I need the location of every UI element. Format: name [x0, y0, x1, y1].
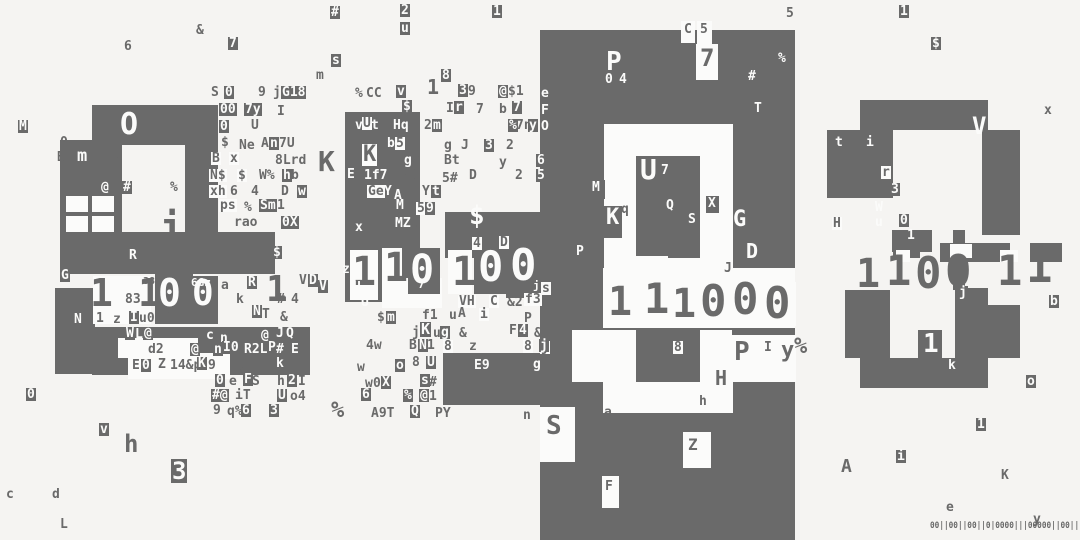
glyph: v [396, 85, 406, 98]
glyph: j [958, 286, 968, 299]
glyph: U [361, 296, 369, 309]
glyph: m [386, 311, 396, 324]
glyph: PY [435, 407, 451, 420]
glyph: B [211, 152, 221, 165]
glyph: iT [235, 389, 251, 402]
glyph: d2 [148, 343, 164, 356]
glyph: 1 [90, 274, 113, 312]
glyph: 1 [384, 248, 408, 288]
glyph: d [52, 488, 60, 501]
glyph: u [875, 216, 883, 229]
glyph: &2 [507, 296, 523, 309]
glyph: 2 [400, 4, 410, 17]
glyph: N [252, 305, 262, 318]
glyph: 8 [443, 340, 453, 353]
glyph: H [832, 217, 842, 230]
glyph: j [533, 280, 540, 291]
glyph: t [835, 136, 843, 149]
glyph: 1 [976, 418, 986, 431]
glyph: xh [209, 185, 227, 198]
glyph: K [197, 357, 207, 370]
glyph: u [400, 22, 410, 35]
glyph: A [261, 137, 269, 150]
glyph: & [196, 24, 204, 37]
glyph: K [318, 148, 335, 176]
glyph: U [277, 389, 287, 402]
glyph: i [479, 308, 489, 321]
block [55, 288, 95, 374]
glyph: I0 [222, 341, 240, 354]
glyph: y [781, 340, 794, 362]
glyph: a [604, 406, 612, 419]
glyph: 1 [997, 250, 1022, 292]
glyph: 6 [230, 185, 238, 198]
glyph: K [420, 322, 431, 337]
glyph: h [277, 375, 285, 388]
block [66, 196, 88, 212]
glyph: 5 [395, 137, 405, 150]
glyph: J [461, 139, 469, 152]
glitch-canvas: 00||00||00||0|0000|||00000||00|| M&67#sm… [0, 0, 1080, 540]
glyph: L [60, 518, 68, 531]
glyph: Bt [444, 154, 460, 167]
glyph: 4 [125, 342, 133, 355]
glyph: 0X [281, 216, 299, 229]
glyph: P [576, 245, 584, 258]
glyph: 2 [424, 119, 432, 132]
glyph: A [841, 458, 852, 476]
glyph: 00 [219, 103, 237, 116]
block [982, 130, 1020, 235]
glyph: M [396, 199, 404, 212]
glyph: A9T [371, 407, 394, 420]
glyph: Z [412, 154, 420, 167]
glyph: F [509, 324, 517, 337]
glyph: H [715, 368, 727, 388]
glyph: o4 [290, 390, 306, 403]
glyph: w [357, 361, 365, 374]
glyph: P [268, 341, 276, 354]
glyph: G [733, 209, 746, 231]
glyph: R [128, 249, 138, 262]
glyph: $ [221, 136, 229, 149]
block [603, 382, 733, 413]
glyph: ps [219, 199, 237, 212]
glyph: # [276, 343, 284, 356]
glyph: b [499, 103, 507, 116]
block [66, 216, 88, 232]
glyph: 2 [115, 151, 123, 164]
glyph: i [866, 136, 874, 149]
glyph: $1 [508, 85, 524, 98]
glyph: @ [498, 85, 508, 98]
glyph: 7 [699, 46, 715, 70]
glyph: Q [236, 359, 244, 372]
glyph: M [18, 120, 28, 133]
glyph: $ [237, 169, 247, 182]
glyph: V [299, 274, 307, 287]
glyph: u0c3 [139, 312, 170, 325]
glyph: H [353, 281, 361, 294]
glyph: 7 [228, 37, 238, 50]
glyph: 2 [287, 374, 297, 387]
glyph: f3 [524, 293, 542, 306]
glyph: 9 [468, 85, 476, 98]
glyph: U [426, 356, 436, 369]
glyph: 7U [279, 137, 295, 150]
glyph: D [746, 241, 758, 261]
glyph: Q [666, 199, 674, 212]
glyph: # [748, 70, 756, 83]
glyph: # [122, 181, 132, 194]
block [988, 305, 1020, 358]
glyph: y [1033, 513, 1041, 526]
glyph: u [449, 309, 457, 322]
glyph: 5 [699, 23, 709, 36]
glyph: d [209, 216, 217, 229]
glyph: V [972, 114, 986, 138]
glyph: 0 [60, 136, 68, 149]
glyph: T [262, 308, 270, 321]
glyph: n [269, 137, 279, 150]
glyph: 1f7 [364, 169, 387, 182]
glyph: 9 [258, 86, 266, 99]
glyph: % [170, 181, 178, 194]
glyph: AK [399, 169, 415, 182]
glyph: 1 [899, 5, 909, 18]
glyph: U [640, 156, 657, 184]
glyph: k [276, 357, 284, 370]
glyph: i [896, 450, 906, 463]
glyph: 1 [492, 5, 502, 18]
glyph: 0 [141, 359, 151, 372]
glyph: CC [366, 87, 382, 100]
glyph: 9 [425, 202, 435, 215]
glyph: y [528, 119, 538, 132]
glyph: $ [402, 100, 412, 113]
glyph: w [297, 185, 307, 198]
glyph: y [499, 156, 507, 169]
glyph: 0 [915, 252, 942, 296]
glyph: 0 [219, 120, 229, 133]
glyph: @ [100, 181, 110, 194]
glyph: 0 [26, 388, 36, 401]
glyph: Hq [393, 119, 409, 132]
glyph: % [794, 336, 807, 358]
glyph: 8 [441, 69, 451, 82]
glyph: % [355, 87, 363, 100]
glyph: 8 [673, 341, 683, 354]
block [92, 196, 114, 212]
glyph: T [754, 102, 762, 115]
glyph: b [1049, 295, 1059, 308]
glyph: 6Gz [191, 277, 211, 288]
glyph: 1 [907, 229, 915, 242]
glyph: n [523, 409, 531, 422]
glyph: Z [157, 358, 167, 371]
glyph: # [429, 376, 437, 389]
glyph: O [120, 110, 138, 140]
glyph: 0 [158, 274, 181, 312]
glyph: 0 [899, 214, 909, 227]
glyph: 3 [269, 404, 279, 417]
glyph: 4 [251, 185, 259, 198]
glyph: $ [377, 311, 385, 324]
glyph: o [395, 359, 405, 372]
block [860, 100, 988, 130]
glyph: 9 [208, 359, 216, 372]
block [636, 330, 700, 382]
glyph: 0 [224, 86, 234, 99]
glyph: P [734, 339, 750, 365]
glyph: 1 [1026, 246, 1053, 290]
glyph: 9 [213, 404, 221, 417]
glyph: @ [419, 389, 429, 402]
glyph: X [381, 376, 391, 389]
glyph: 7 [476, 103, 484, 116]
glyph: r [454, 101, 464, 114]
glyph: % [403, 389, 413, 402]
glyph: K [605, 207, 620, 229]
glyph: 3 [484, 139, 494, 152]
glyph: 7 [661, 164, 669, 177]
block [845, 290, 890, 358]
glyph: e [229, 375, 237, 388]
glyph: W [125, 327, 135, 340]
glyph: 4 [619, 73, 627, 86]
glyph: D [469, 169, 477, 182]
glyph: # [277, 293, 285, 306]
glyph: 1 [429, 390, 437, 403]
glyph: S [252, 375, 260, 388]
glyph: S [688, 213, 696, 226]
glyph: G [60, 269, 70, 282]
glyph: t [431, 185, 441, 198]
glyph: E9 [474, 359, 490, 372]
glyph: g [444, 139, 452, 152]
glyph: 0 [700, 280, 727, 324]
glyph: # [330, 6, 340, 19]
glyph: F [605, 480, 613, 493]
glyph: I [446, 102, 454, 115]
glyph: 38 [143, 277, 155, 287]
glyph: % [244, 201, 252, 214]
glyph: I [129, 311, 139, 324]
glyph: 1 [277, 199, 285, 212]
glyph: g [404, 154, 412, 167]
glyph: @ [190, 343, 200, 356]
glyph: D [281, 185, 289, 198]
glyph: 1 [672, 284, 696, 324]
glyph: 5 [786, 7, 794, 20]
glyph: E [347, 168, 355, 181]
glyph: u [412, 217, 420, 230]
glyph: x [1044, 104, 1052, 117]
glyph: $ [931, 37, 941, 50]
glyph: 2 [515, 169, 523, 182]
glyph: z [469, 340, 477, 353]
glyph: r [881, 166, 891, 179]
glyph: x [229, 152, 239, 165]
glyph: $ [272, 246, 282, 259]
glyph: 0 [373, 377, 381, 390]
glyph: V [318, 280, 328, 293]
glyph: c [206, 329, 214, 342]
glyph: s [331, 54, 341, 67]
glyph: J [276, 327, 284, 340]
glyph: W% [259, 169, 275, 182]
glyph: 1 [427, 77, 439, 97]
glyph: 2 [506, 139, 514, 152]
glyph: j [273, 86, 281, 99]
glyph: 0 [605, 73, 613, 86]
glyph: 5# [442, 172, 458, 185]
glyph: s [541, 282, 551, 295]
block [92, 105, 218, 145]
glyph: Q [410, 405, 420, 418]
glyph: e [946, 501, 954, 514]
glyph: m [432, 119, 442, 132]
glyph: F [541, 104, 549, 117]
glyph: i [160, 208, 183, 246]
glyph: X [707, 197, 717, 210]
glyph: 7 [512, 101, 522, 114]
glyph: 0 [478, 246, 503, 288]
glyph: 1 [608, 282, 632, 322]
glyph: 8 [523, 340, 533, 353]
glyph: c [6, 488, 14, 501]
glyph: 83 [125, 293, 141, 306]
glyph: & [459, 327, 467, 340]
glyph: @ [143, 327, 153, 340]
glyph: 4 [291, 293, 299, 306]
glyph: K [362, 144, 377, 166]
glyph: Sm [259, 199, 277, 212]
glyph: z [113, 313, 121, 326]
glyph: m [76, 148, 88, 165]
glyph: e [541, 87, 549, 100]
glyph: b [291, 169, 299, 182]
glyph: Z [688, 437, 698, 453]
glyph: B [409, 339, 417, 352]
glyph: z [342, 263, 350, 276]
glyph: 6 [124, 40, 132, 53]
glyph: 5 [536, 169, 546, 182]
glyph: v [99, 423, 109, 436]
glyph: b [387, 137, 395, 150]
glyph: h [699, 395, 707, 408]
glyph: I [763, 341, 773, 354]
glyph: k [948, 359, 956, 372]
glyph: h [124, 432, 138, 456]
glyph: I [298, 375, 306, 388]
glyph: % [778, 52, 786, 65]
glyph: E [291, 343, 299, 356]
glyph: E [131, 359, 141, 372]
glyph: N$ [209, 169, 227, 182]
glyph: 7y [244, 103, 262, 116]
glyph: Ge [367, 185, 385, 198]
block [443, 353, 540, 405]
glyph: 6 [536, 154, 546, 167]
glyph: z [452, 283, 459, 294]
glyph: rao [234, 216, 257, 229]
glyph: #@ [211, 389, 229, 402]
glyph: D [308, 274, 318, 287]
glyph: MZ [395, 217, 411, 230]
glyph: N [74, 313, 82, 326]
glyph: Y [422, 185, 430, 198]
glyph: A [458, 307, 466, 320]
glyph: O [541, 120, 549, 133]
glyph: Ne [239, 139, 255, 152]
glyph: M [591, 181, 601, 194]
glyph: o [1026, 375, 1036, 388]
glyph: 1 [923, 331, 939, 357]
glyph: 0 [764, 282, 791, 326]
glyph: 8 [412, 356, 420, 369]
glyph: S [546, 413, 562, 439]
glyph: j [539, 339, 549, 352]
glyph: 8Lrd [275, 154, 306, 167]
glyph: Q [285, 327, 295, 340]
block [92, 216, 114, 232]
glyph: K [1001, 469, 1009, 482]
glyph: 6 [379, 154, 387, 167]
glyph: % [331, 400, 344, 422]
glyph: 0 [732, 278, 759, 322]
glyph: g [532, 358, 542, 371]
glyph: 6 [361, 388, 371, 401]
glyph: $ [469, 203, 485, 229]
glyph: 6 [241, 404, 251, 417]
glyph: 0 [215, 374, 225, 387]
glyph: q [621, 203, 629, 216]
glyph: 1 [427, 339, 435, 352]
glyph: U [251, 119, 259, 132]
glyph: t [371, 119, 379, 132]
glyph: R [247, 276, 257, 289]
glyph: & [280, 311, 288, 324]
glyph: C [683, 23, 693, 36]
glyph: g [440, 326, 450, 339]
glyph: m [316, 69, 324, 82]
glyph: 1 [886, 250, 911, 292]
glyph: 4 [518, 324, 528, 337]
glyph: 3 [171, 459, 187, 483]
glyph: 1 [856, 254, 880, 294]
glyph: a [221, 279, 229, 292]
glyph: L [135, 328, 143, 341]
binary-row: 00||00||00||0|0000|||00000||00|| [930, 522, 1079, 531]
glyph: S [211, 86, 219, 99]
glyph: x [355, 221, 363, 234]
glyph: R2L [243, 343, 268, 356]
glyph: 4w [366, 339, 382, 352]
glyph: I [277, 105, 285, 118]
glyph: Y [384, 185, 392, 198]
glyph: W [875, 201, 883, 214]
glyph: 1 [644, 278, 669, 320]
glyph: B [57, 151, 65, 164]
glyph: C [489, 295, 499, 308]
glyph: k [236, 293, 244, 306]
glyph: 3 [458, 84, 468, 97]
glyph: G18 [281, 86, 306, 99]
glyph: 1 [96, 312, 104, 325]
glyph: 7 [418, 279, 425, 290]
glyph: 3 [890, 183, 900, 196]
